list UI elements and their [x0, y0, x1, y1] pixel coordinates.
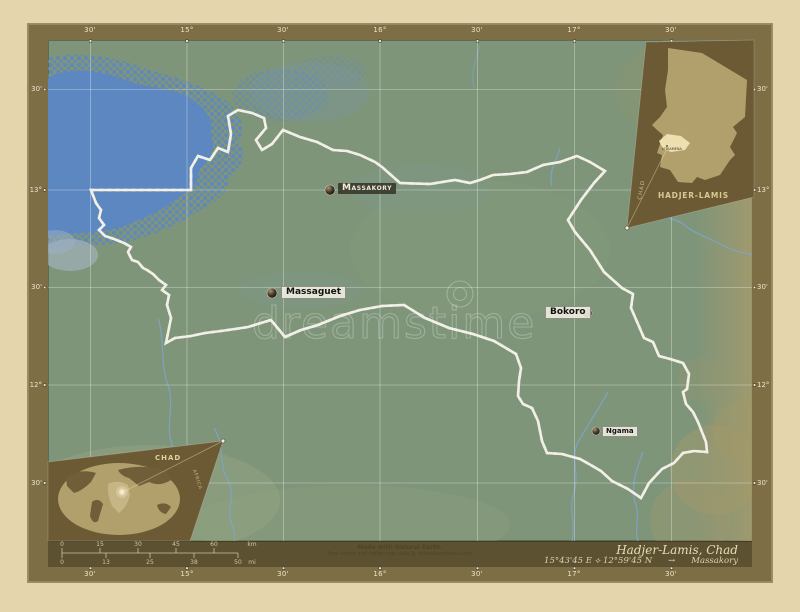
map-title: Hadjer-Lamis, Chad — [616, 543, 738, 557]
tick-left-0: 30' — [27, 85, 42, 93]
tick-top-6: 30' — [659, 26, 683, 34]
scale-mi-unit: mi — [244, 559, 260, 566]
scale-km-3: 45 — [168, 541, 184, 548]
tick-left-3: 12° — [27, 381, 42, 389]
attribution-line2: Free vector and raster map data @ natura… — [300, 551, 500, 557]
tick-top-3: 16° — [368, 26, 392, 34]
massaguet-label: Massaguet — [281, 286, 346, 299]
arrow-icon: → — [668, 556, 675, 566]
scale-mi-2: 25 — [142, 559, 158, 566]
tick-top-2: 30' — [271, 26, 295, 34]
subtitle-place: Massakory — [691, 556, 738, 566]
map-subtitle: 15°43'45 E ⟡ 12°59'45 N → Massakory — [544, 556, 738, 566]
scale-mi-1: 13 — [98, 559, 114, 566]
tick-right-1: 13° — [757, 186, 775, 194]
tick-left-2: 30' — [27, 283, 42, 291]
attribution: Made with Natural Earth. Free vector and… — [300, 544, 500, 557]
bokoro-label: Bokoro — [545, 306, 591, 319]
tick-bottom-5: 17° — [562, 570, 586, 578]
tick-top-5: 17° — [562, 26, 586, 34]
scale-mi-0: 0 — [54, 559, 70, 566]
scale-km-1: 15 — [92, 541, 108, 548]
tick-top-4: 30' — [465, 26, 489, 34]
tick-right-4: 30' — [757, 479, 775, 487]
tick-left-1: 13° — [27, 186, 42, 194]
tick-left-4: 30' — [27, 479, 42, 487]
scale-km-2: 30 — [130, 541, 146, 548]
scale-km-4: 60 — [206, 541, 222, 548]
map-coordinates: 15°43'45 E ⟡ 12°59'45 N — [544, 556, 652, 566]
tick-bottom-2: 30' — [271, 570, 295, 578]
map-area — [48, 40, 752, 541]
tick-top-1: 15° — [175, 26, 199, 34]
tick-bottom-4: 30' — [465, 570, 489, 578]
ngama-label: Ngama — [602, 426, 638, 437]
tick-bottom-3: 16° — [368, 570, 392, 578]
tick-bottom-6: 30' — [659, 570, 683, 578]
stock-map-image: dreamstime — [0, 0, 800, 612]
tick-bottom-1: 15° — [175, 570, 199, 578]
massakory-label: Massakory — [338, 183, 396, 194]
tick-right-3: 12° — [757, 381, 775, 389]
scale-mi-3: 38 — [186, 559, 202, 566]
attribution-line1: Made with Natural Earth. — [300, 544, 500, 551]
tick-top-0: 30' — [78, 26, 102, 34]
scale-km-0: 0 — [54, 541, 70, 548]
tick-bottom-0: 30' — [78, 570, 102, 578]
tick-right-0: 30' — [757, 85, 775, 93]
tick-right-2: 30' — [757, 283, 775, 291]
scale-km-unit: km — [244, 541, 260, 548]
